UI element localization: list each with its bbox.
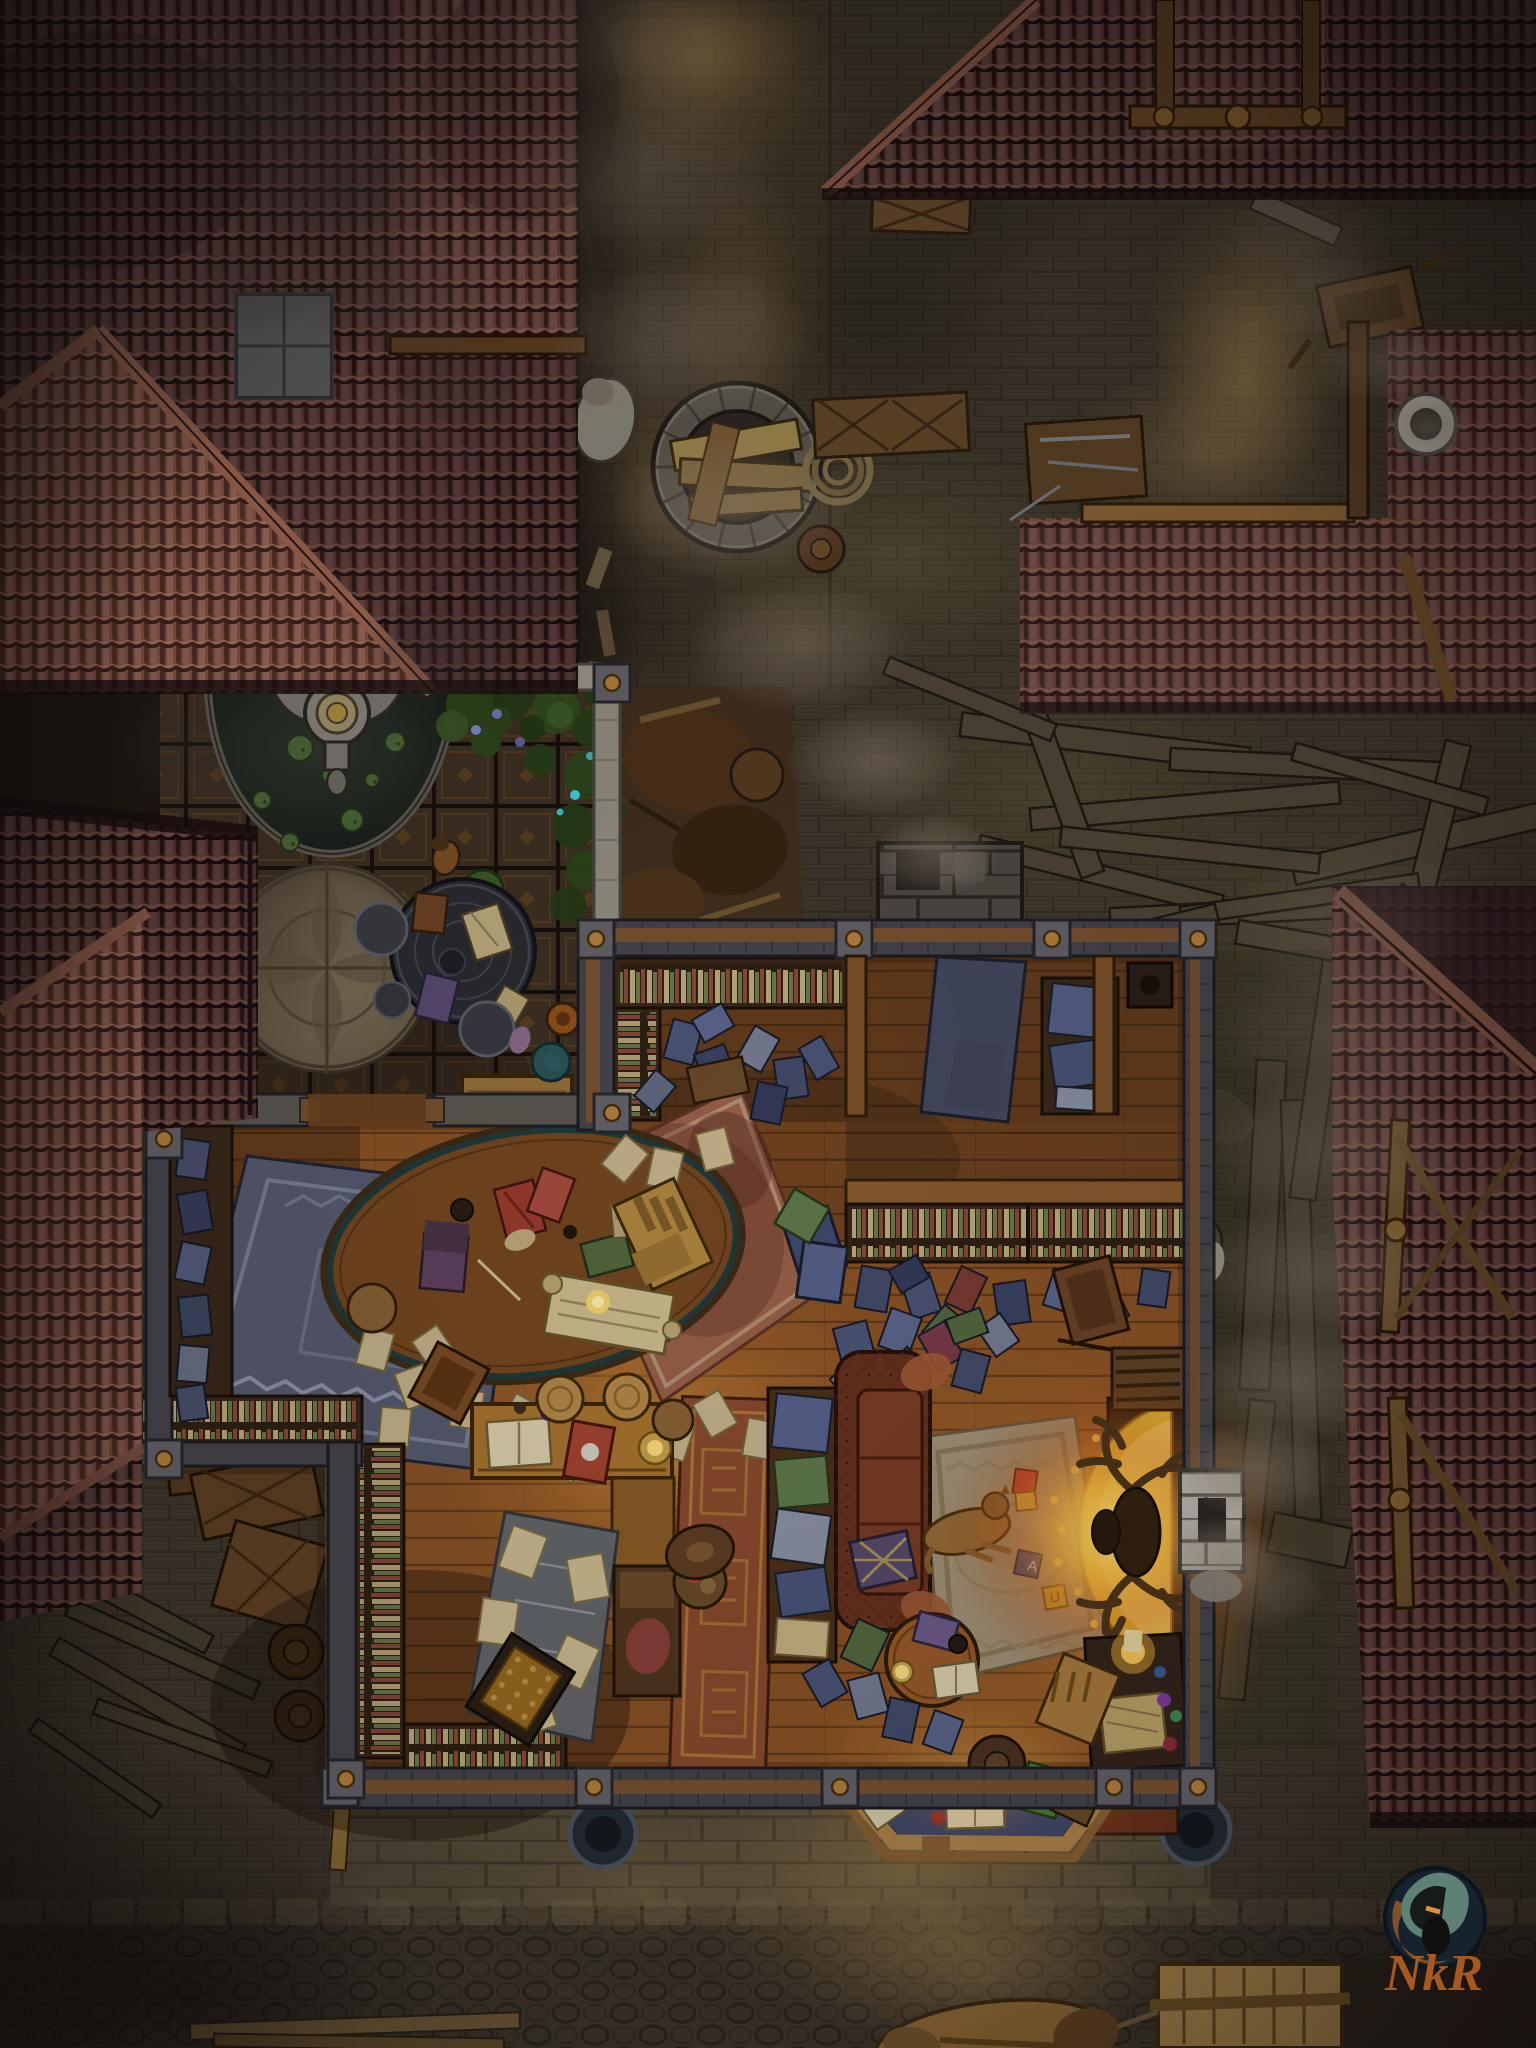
svg-text:NkR: NkR (1384, 1945, 1483, 2002)
